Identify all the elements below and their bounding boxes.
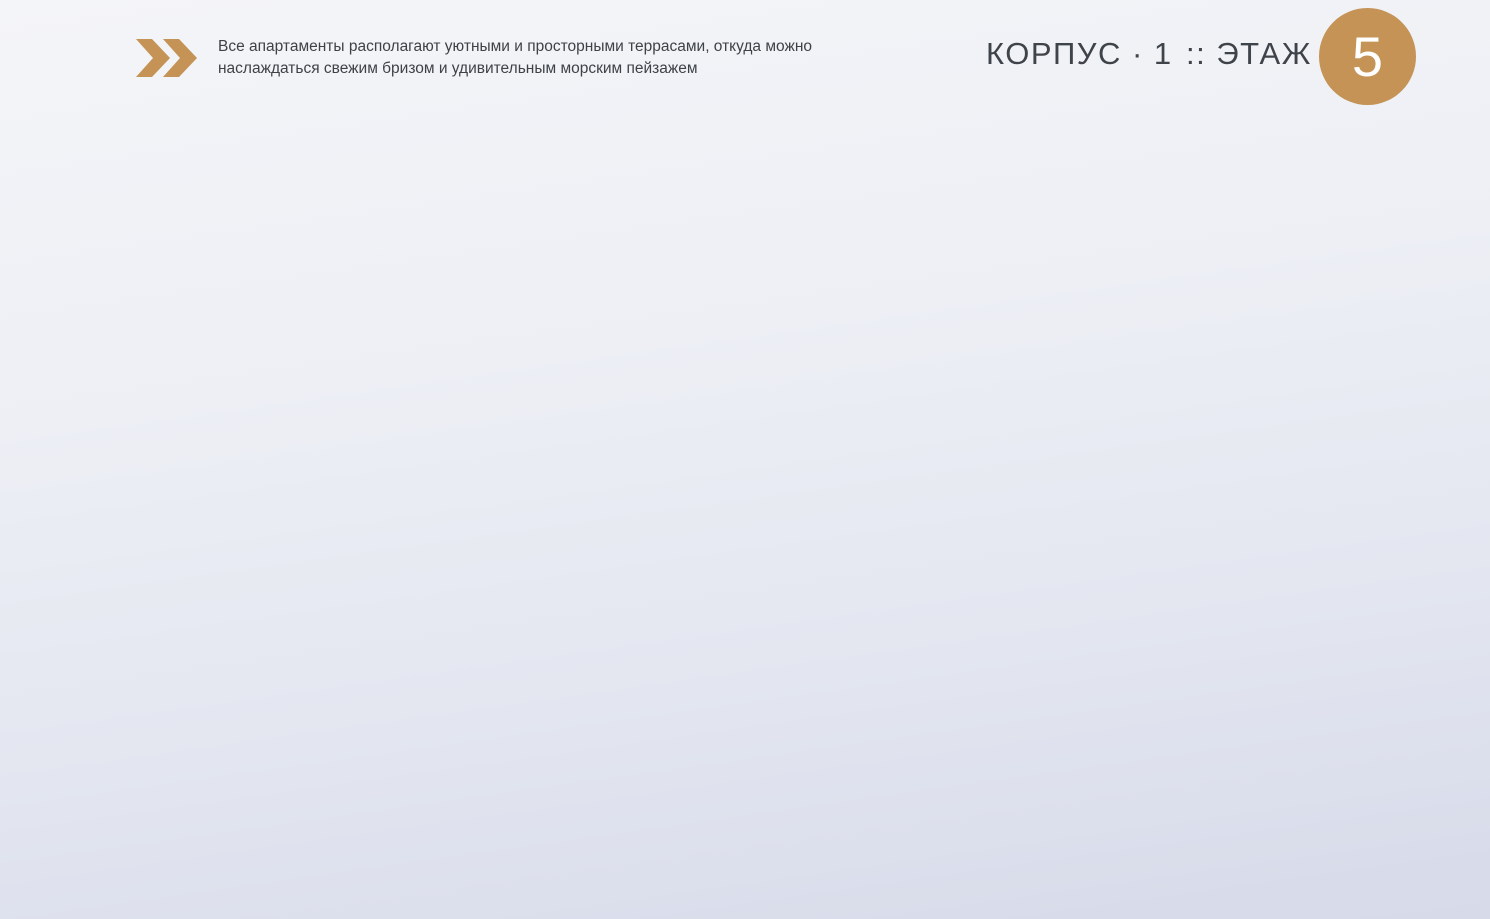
floor-plan-svg [0, 0, 1490, 919]
page: Все апартаменты располагают уютными и пр… [0, 0, 1490, 919]
